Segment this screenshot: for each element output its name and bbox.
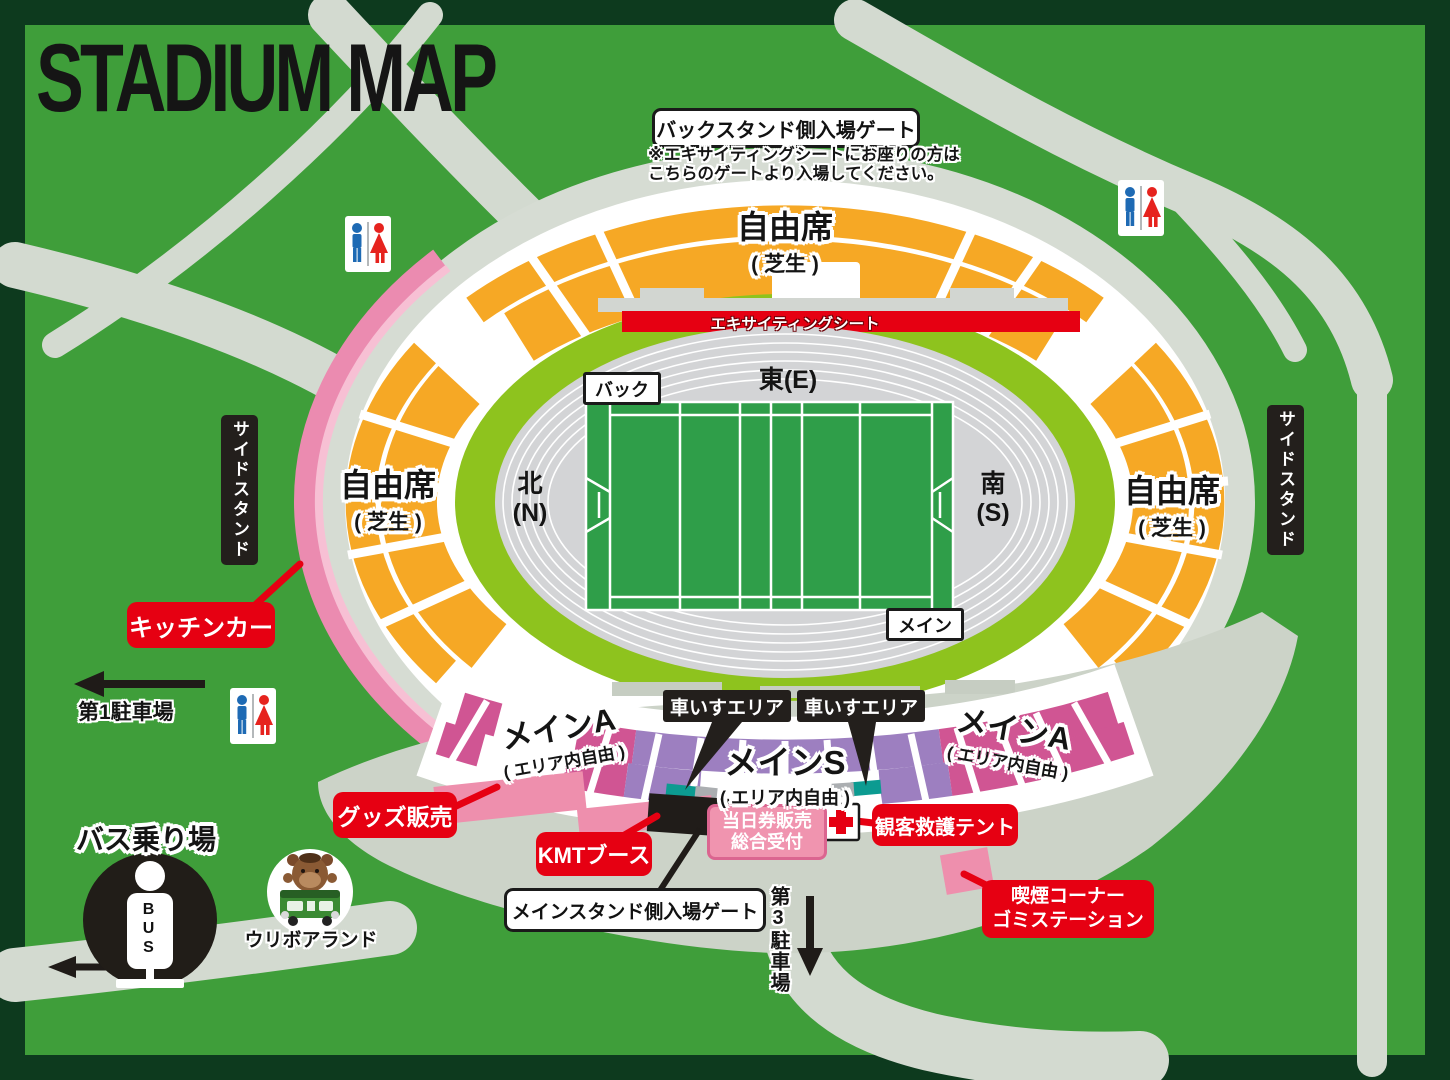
bus-stop-label: バス乗り場 [76, 818, 216, 858]
bus-sign-text: BUS [139, 901, 157, 958]
free-seat-sub: ( 芝生 ) [1138, 512, 1206, 542]
back-side-label: バック [583, 372, 661, 405]
south-en: (S) [976, 499, 1009, 528]
main-s-label: メインS ( エリア内自由 ) [700, 736, 870, 810]
ticket-office-label: 当日券販売 総合受付 [707, 804, 827, 860]
main-s-text: メインS [724, 736, 845, 784]
side-stand-label-left: サイドスタンド [221, 415, 258, 565]
main-side-label: メイン [886, 608, 964, 641]
mascot-land-label: ウリボアランド [240, 925, 382, 952]
exciting-seat-label: エキサイティングシート [630, 312, 960, 334]
south-label: 南 (S) [958, 470, 1028, 528]
smoking-line2: ゴミステーション [992, 909, 1144, 933]
free-seat-text: 自由席 [737, 202, 833, 248]
back-gate-note-line1: ※エキサイティングシートにお座りの方は [648, 146, 960, 165]
kmt-booth-label: KMTブース [536, 832, 652, 876]
north-label: 北 (N) [495, 470, 565, 528]
free-seat-label-top: 自由席 ( 芝生 ) [705, 202, 865, 278]
free-seat-label-right: 自由席 ( 芝生 ) [1094, 466, 1250, 542]
free-seat-text: 自由席 [340, 460, 436, 506]
north-en: (N) [513, 499, 548, 528]
parking3-label: 第3駐車場 [764, 886, 793, 998]
side-stand-label-right: サイドスタンド [1267, 405, 1304, 555]
back-gate-note: ※エキサイティングシートにお座りの方は こちらのゲートより入場してください。 [648, 146, 960, 184]
kitchen-car-label: キッチンカー [127, 602, 275, 648]
smoking-area-label: 喫煙コーナー ゴミステーション [982, 880, 1154, 938]
north-jp: 北 [517, 470, 542, 499]
restroom-icon [1118, 180, 1164, 236]
smoking-line1: 喫煙コーナー [1011, 885, 1125, 909]
wheelchair-area-label: 車いすエリア [797, 690, 925, 722]
ticket-line2: 総合受付 [731, 832, 803, 853]
restroom-icon [345, 216, 391, 272]
mascot-icon [267, 849, 353, 935]
free-seat-label-left: 自由席 ( 芝生 ) [310, 460, 466, 536]
back-structure-tab [950, 288, 1014, 300]
back-structure-tab [640, 288, 704, 300]
stadium-map: STADIUM MAP バックスタンド側入場ゲート ※エキサイティングシートにお… [0, 0, 1450, 1080]
area-free-sub: ( エリア内自由 ) [720, 784, 850, 810]
free-seat-sub: ( 芝生 ) [751, 248, 819, 278]
ticket-line1: 当日券販売 [722, 811, 812, 832]
free-seat-sub: ( 芝生 ) [354, 506, 422, 536]
east-label: 東(E) [728, 360, 848, 396]
back-gate-label: バックスタンド側入場ゲート [652, 108, 920, 148]
wheelchair-area-label: 車いすエリア [663, 690, 791, 722]
parking1-label: 第1駐車場 [78, 696, 174, 726]
restroom-icon [230, 688, 276, 744]
free-seat-text: 自由席 [1124, 466, 1220, 512]
page-title: STADIUM MAP [36, 30, 494, 127]
rugby-field [586, 402, 953, 610]
rescue-tent-label: 観客救護テント [872, 804, 1018, 846]
goods-sale-label: グッズ販売 [333, 792, 457, 838]
back-structure [598, 298, 1068, 312]
main-gate-label: メインスタンド側入場ゲート [504, 888, 766, 932]
south-jp: 南 [980, 470, 1005, 499]
back-gate-note-line2: こちらのゲートより入場してください。 [648, 165, 960, 184]
